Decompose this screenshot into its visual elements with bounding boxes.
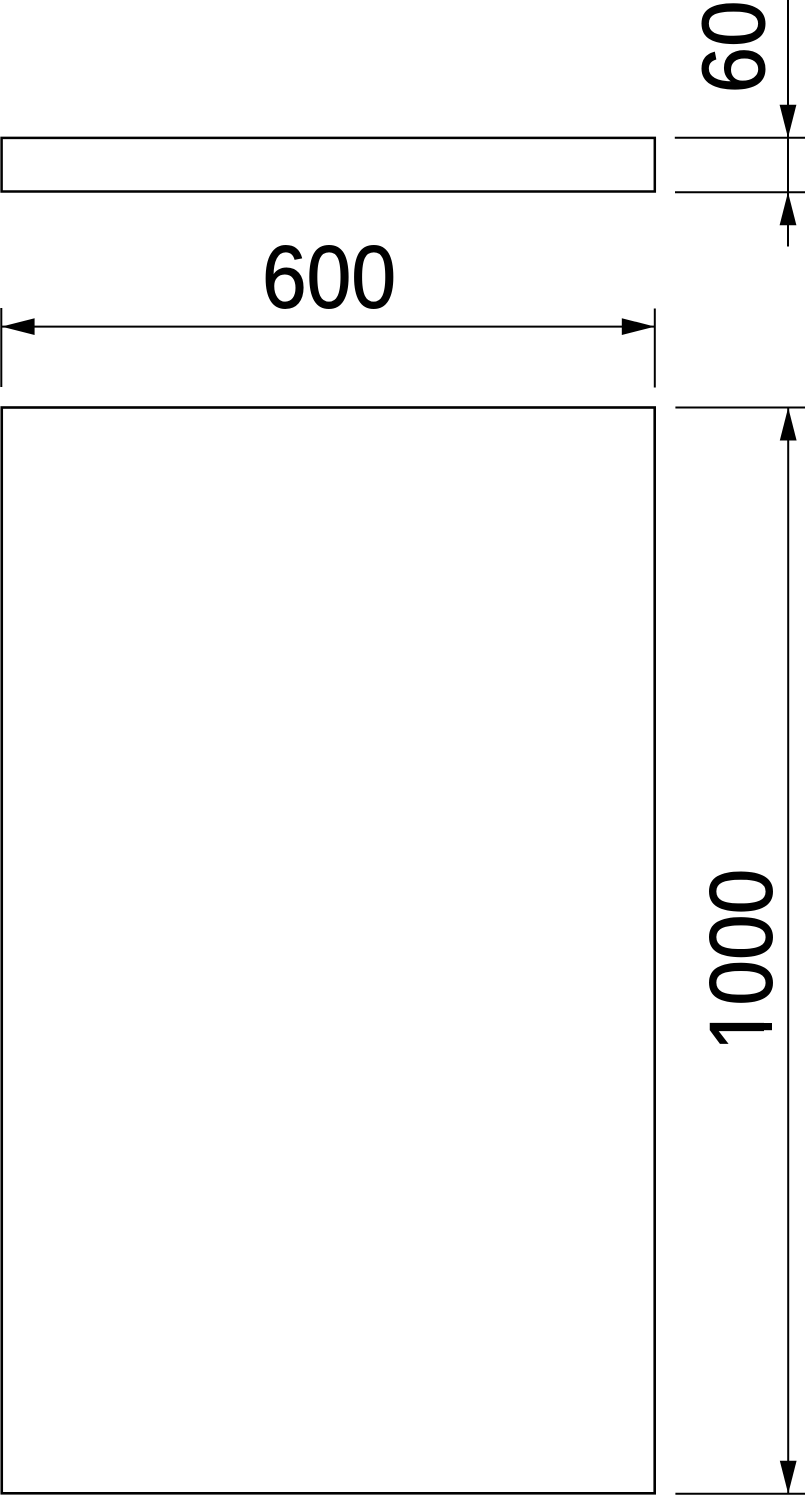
svg-text:1000: 1000: [691, 869, 791, 1052]
svg-text:60: 60: [685, 0, 784, 93]
svg-text:600: 600: [262, 227, 396, 327]
